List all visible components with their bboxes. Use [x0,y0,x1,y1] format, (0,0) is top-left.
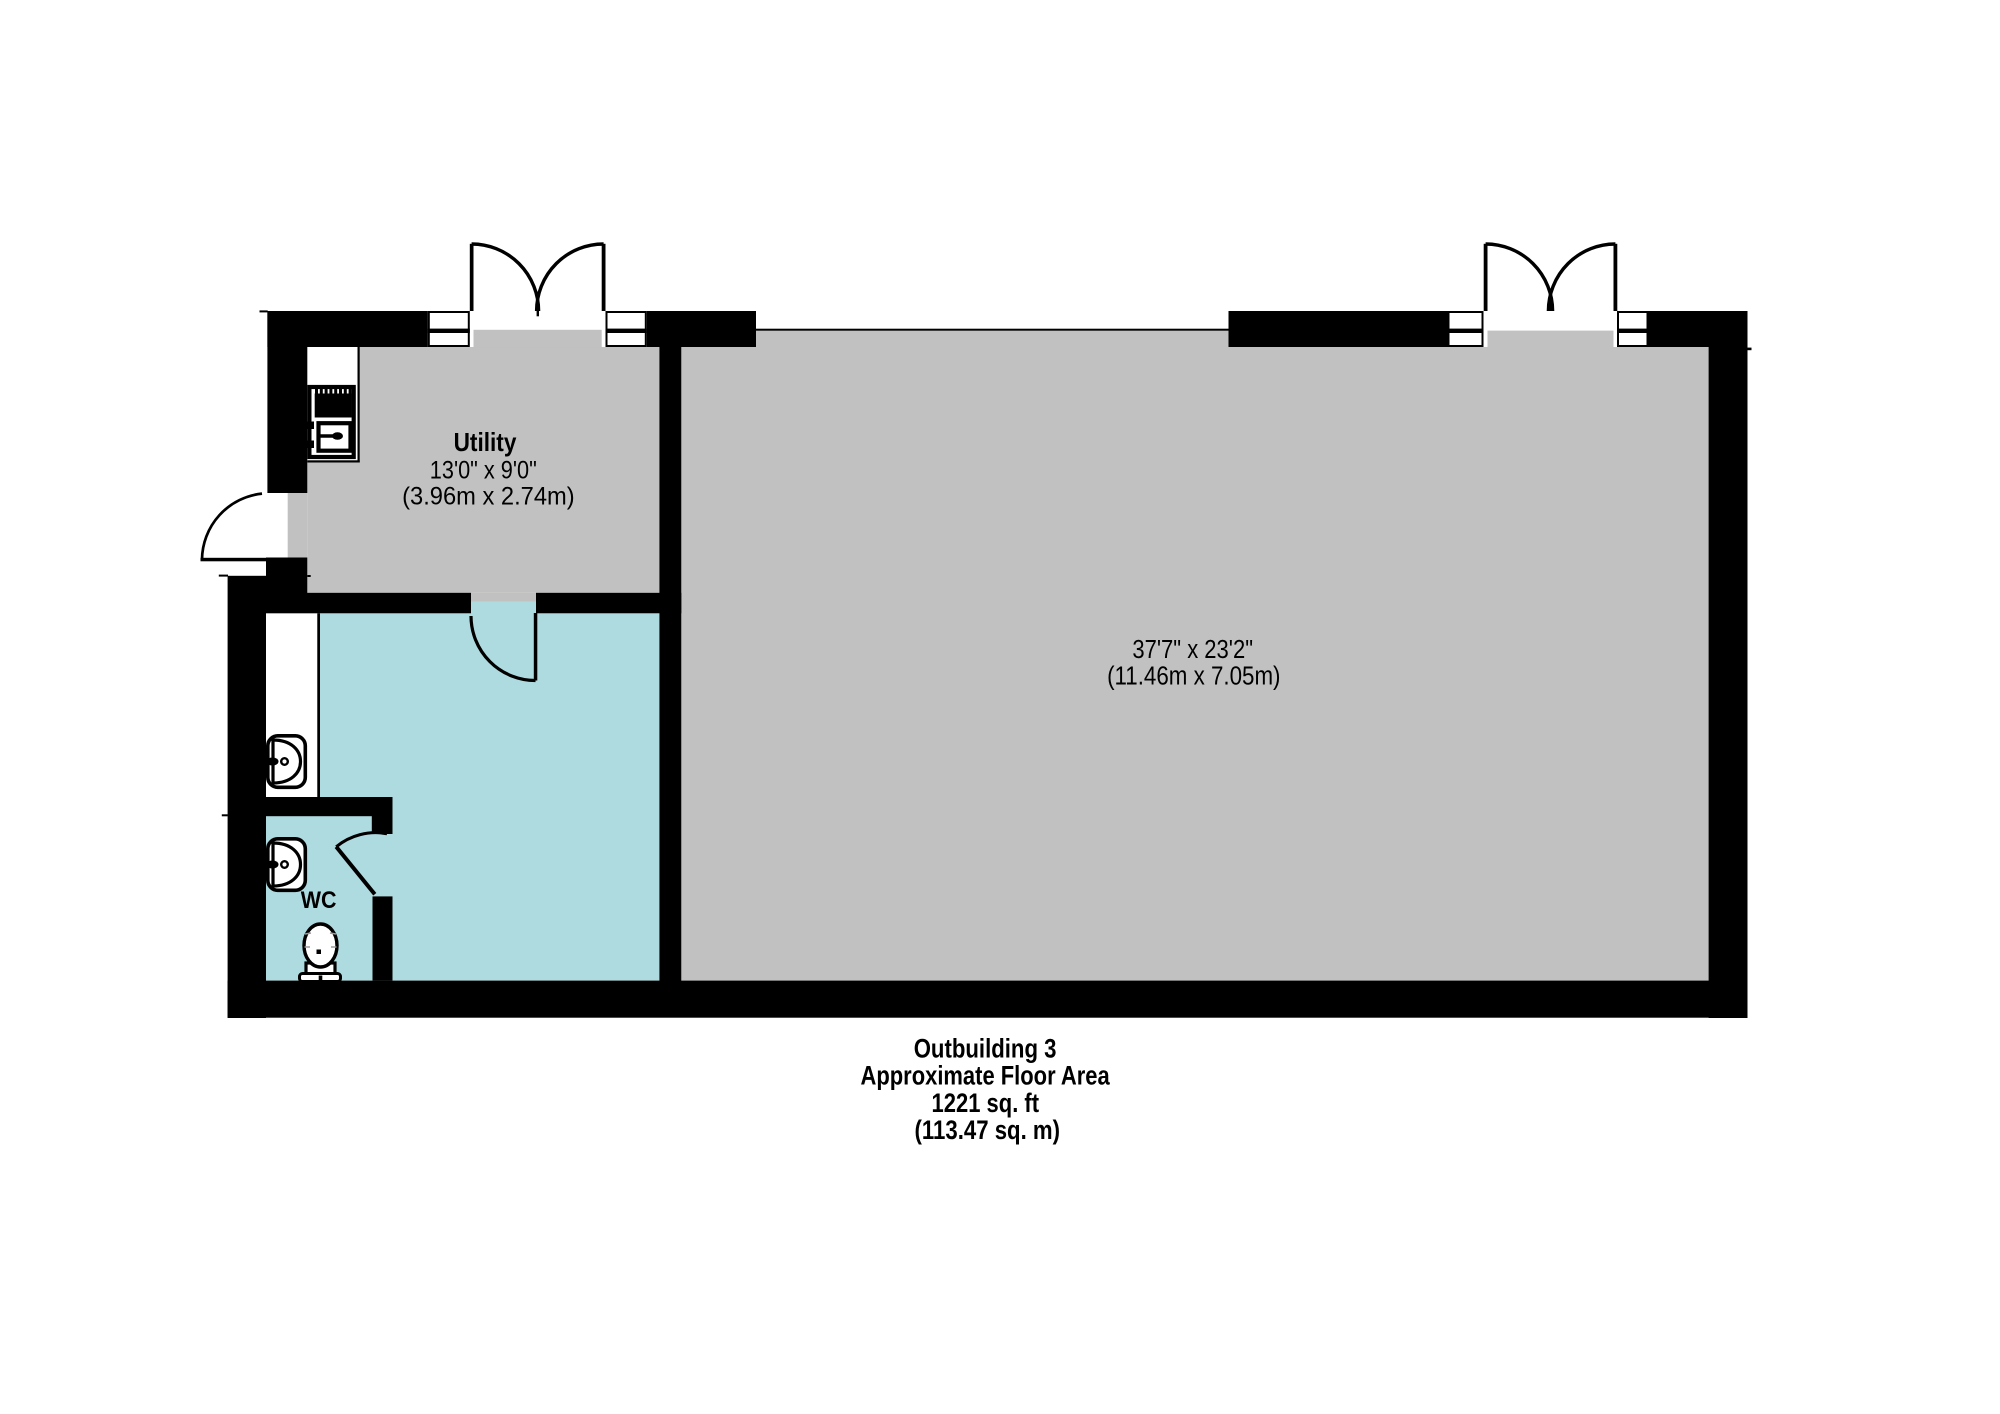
svg-text:(11.46m x 7.05m): (11.46m x 7.05m) [1107,662,1280,690]
svg-text:Outbuilding 3: Outbuilding 3 [914,1033,1057,1063]
svg-text:(113.47 sq. m): (113.47 sq. m) [915,1115,1061,1145]
svg-text:37'7" x 23'2": 37'7" x 23'2" [1132,636,1253,664]
svg-text:1221 sq. ft: 1221 sq. ft [932,1088,1040,1118]
svg-text:Utility: Utility [454,427,517,457]
svg-text:WC: WC [301,887,337,914]
svg-text:Approximate Floor Area: Approximate Floor Area [861,1061,1110,1091]
svg-text:13'0" x 9'0": 13'0" x 9'0" [430,456,537,484]
svg-text:(3.96m x 2.74m): (3.96m x 2.74m) [402,482,575,510]
